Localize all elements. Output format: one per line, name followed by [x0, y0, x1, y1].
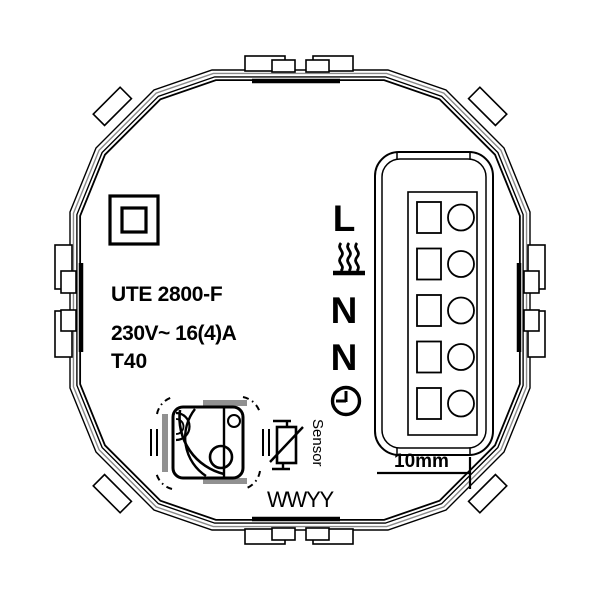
sensor-label: Sensor: [309, 419, 326, 467]
terminal-label-neutral-1: N: [331, 290, 358, 331]
terminal-label-live: L: [333, 198, 356, 239]
rating-text: 230V~ 16(4)A: [111, 322, 237, 345]
model-text: UTE 2800-F: [111, 283, 223, 306]
temp-class-text: T40: [111, 350, 147, 373]
dimension-label: 10mm: [394, 451, 449, 472]
terminal-label-neutral-2: N: [331, 337, 358, 378]
date-code-text: WWYY: [267, 487, 335, 512]
diagram-page: UTE 2800-F 230V~ 16(4)A T40 WWYY L N N: [0, 0, 600, 600]
terminal-block: [375, 152, 493, 455]
device-rear-diagram: UTE 2800-F 230V~ 16(4)A T40 WWYY L N N: [0, 0, 600, 600]
